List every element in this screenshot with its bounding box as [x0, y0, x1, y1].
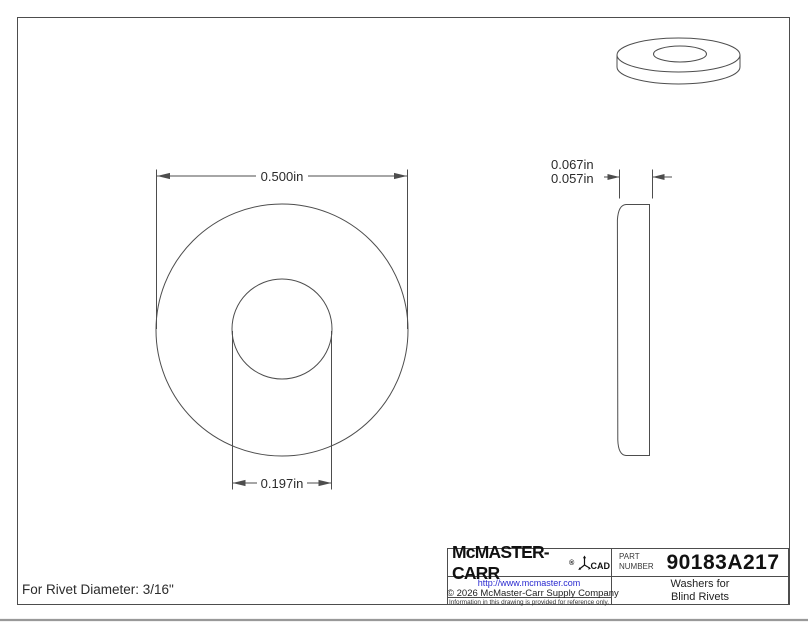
cad-label: CAD	[591, 561, 611, 571]
outer-diameter-dimension	[157, 170, 408, 330]
washer-hole-circle	[232, 279, 332, 379]
technical-drawing-canvas	[0, 0, 808, 625]
part-number-value: 90183A217	[660, 551, 786, 575]
iso-outer-face	[617, 38, 740, 72]
thickness-dimension	[604, 170, 672, 199]
arrowhead-right	[394, 173, 407, 179]
part-caption-line2: NUMBER	[619, 562, 654, 572]
description-line1: Washers for	[612, 578, 788, 591]
iso-hole	[654, 46, 707, 62]
front-view	[156, 204, 408, 456]
isometric-view	[617, 38, 740, 84]
description-line2: Blind Rivets	[612, 591, 788, 604]
drawing-page: 0.500in 0.197in 0.067in 0.057in For Rive…	[0, 0, 808, 625]
washer-outer-circle	[156, 204, 408, 456]
side-view	[617, 205, 649, 456]
cad-badge: CAD	[578, 555, 611, 571]
disclaimer-line: Information in this drawing is provided …	[447, 599, 611, 606]
hole-diameter-dimension	[233, 331, 332, 490]
thickness-min-label: 0.057in	[551, 172, 594, 186]
rivet-diameter-note: For Rivet Diameter: 3/16"	[22, 582, 174, 597]
mcmaster-url-link[interactable]: http://www.mcmaster.com	[447, 578, 611, 588]
outer-diameter-label: 0.500in	[261, 169, 304, 184]
thickness-labels: 0.067in 0.057in	[551, 158, 594, 186]
registered-mark: ®	[569, 560, 573, 567]
arrowhead-right	[653, 174, 665, 180]
part-caption-line1: PART	[619, 552, 654, 562]
side-profile	[617, 205, 649, 456]
arrowhead-left	[157, 173, 170, 179]
arrowhead-left	[233, 480, 246, 486]
thickness-max-label: 0.067in	[551, 158, 594, 172]
arrowhead-right	[319, 480, 332, 486]
hole-diameter-label: 0.197in	[261, 476, 304, 491]
part-number-caption: PART NUMBER	[619, 552, 654, 571]
copyright-line: © 2026 McMaster-Carr Supply Company	[447, 588, 611, 599]
iso-side-wall	[617, 55, 740, 84]
part-description: Washers for Blind Rivets	[612, 578, 788, 604]
cad-axes-icon	[578, 555, 591, 571]
brand-row: McMASTER-CARR® CAD	[452, 551, 610, 575]
arrowhead-left	[608, 174, 620, 180]
sheet-border	[18, 18, 790, 605]
